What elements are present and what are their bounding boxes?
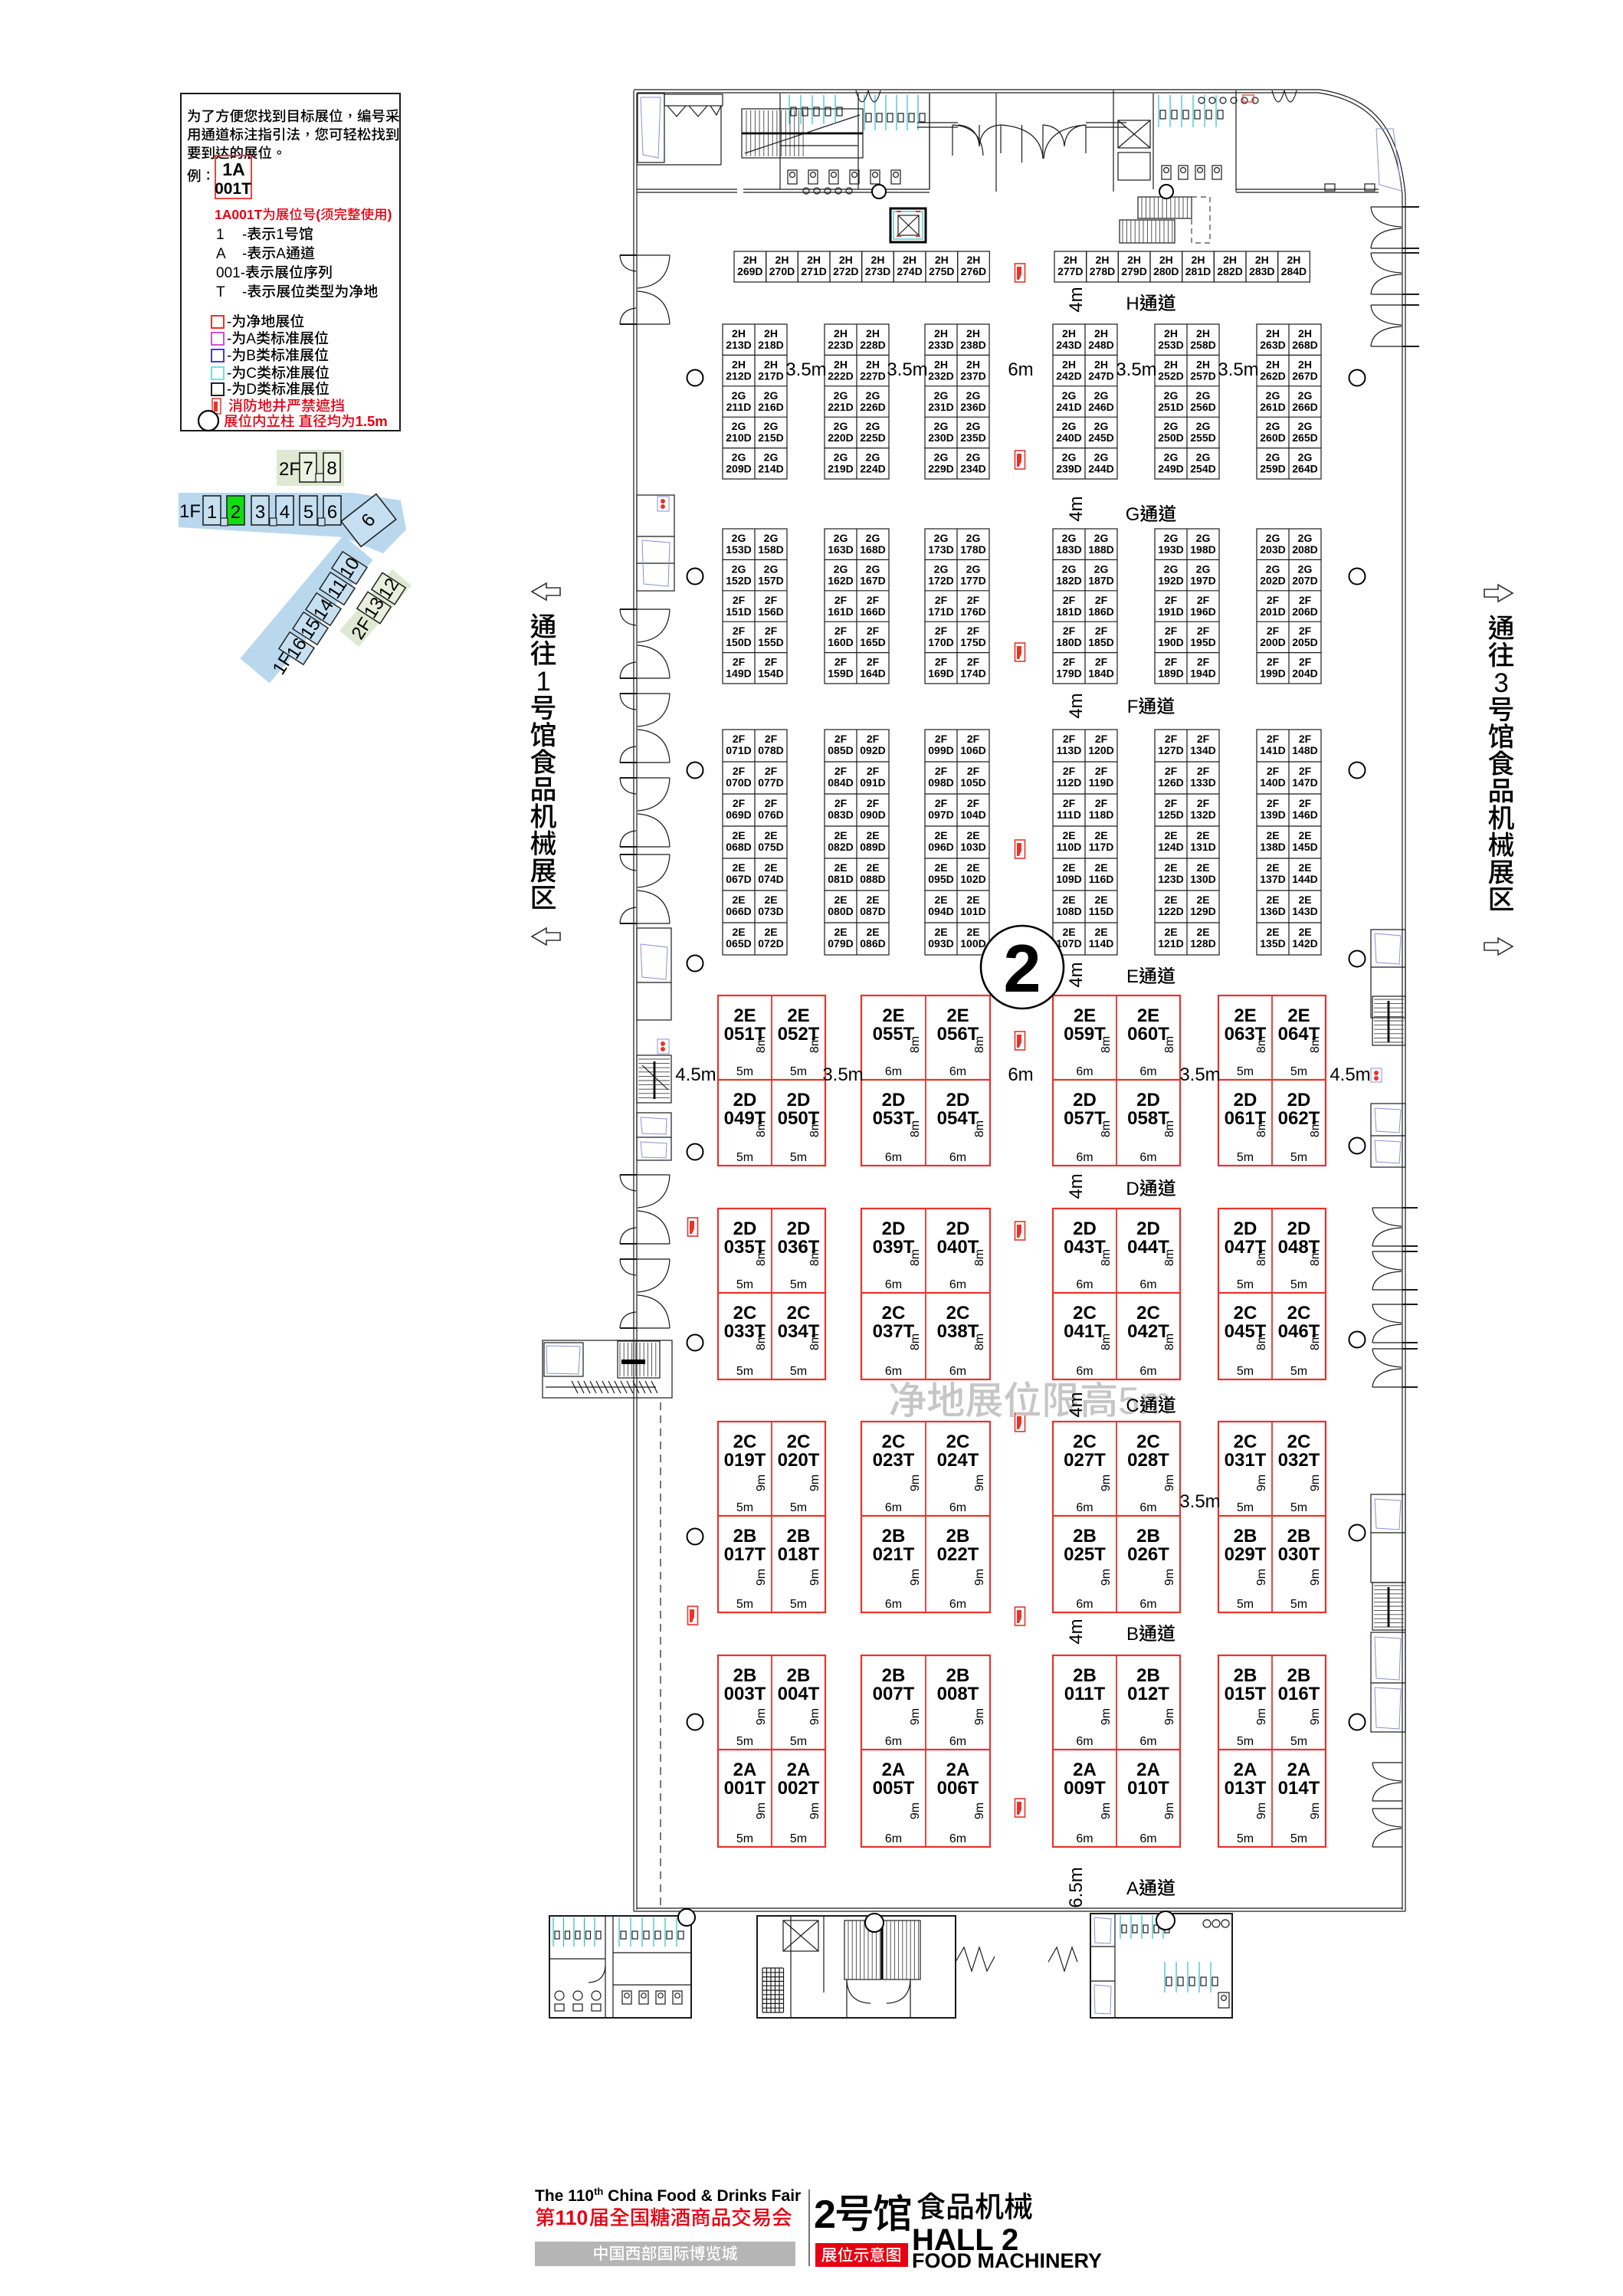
svg-text:(: ( (316, 207, 320, 222)
svg-text:5m: 5m (736, 1832, 753, 1845)
svg-text:-: - (227, 314, 231, 330)
svg-text:8m: 8m (755, 1120, 768, 1137)
svg-text:9m: 9m (1309, 1569, 1322, 1586)
svg-text:5m: 5m (1237, 1278, 1254, 1291)
svg-text:5m: 5m (790, 1598, 807, 1611)
svg-text:8m: 8m (973, 1333, 986, 1350)
svg-text:8m: 8m (755, 1249, 768, 1266)
svg-text:8m: 8m (755, 1333, 768, 1350)
svg-text:4.5m: 4.5m (1330, 1064, 1370, 1085)
svg-text:8m: 8m (808, 1120, 821, 1137)
svg-text:C: C (246, 366, 257, 382)
svg-text:B: B (246, 348, 256, 364)
svg-text:4m: 4m (1066, 1619, 1087, 1644)
svg-text:5m: 5m (736, 1501, 753, 1514)
svg-text:5m: 5m (1237, 1365, 1254, 1378)
svg-text:9m: 9m (1309, 1474, 1322, 1491)
svg-text:6m: 6m (949, 1832, 966, 1845)
svg-text:-: - (227, 331, 231, 347)
svg-text:8m: 8m (1309, 1333, 1322, 1350)
svg-text:6m: 6m (1076, 1278, 1093, 1291)
svg-text:4m: 4m (1066, 496, 1087, 521)
svg-text:2H: 2H (1064, 254, 1077, 266)
svg-text:6m: 6m (1076, 1598, 1093, 1611)
svg-text:8: 8 (326, 458, 336, 479)
svg-text:-: - (242, 227, 247, 243)
svg-text:1: 1 (276, 227, 284, 243)
svg-text:4m: 4m (1066, 1173, 1087, 1199)
svg-text:5m: 5m (1237, 1501, 1254, 1514)
svg-text:5m: 5m (1290, 1065, 1307, 1078)
svg-text:-: - (242, 284, 247, 300)
svg-text:1A: 1A (222, 159, 244, 179)
svg-text:5m: 5m (790, 1832, 807, 1845)
svg-text:274D: 274D (897, 265, 922, 277)
svg-text:3.5m: 3.5m (785, 359, 826, 380)
svg-text:2H: 2H (1287, 254, 1300, 266)
svg-text:6m: 6m (885, 1365, 902, 1378)
svg-text:9m: 9m (1163, 1708, 1176, 1725)
svg-text:9m: 9m (973, 1569, 986, 1586)
svg-text:2H: 2H (1159, 254, 1173, 266)
svg-text:282D: 282D (1217, 265, 1242, 277)
svg-text:6m: 6m (1139, 1151, 1156, 1164)
svg-text:D: D (246, 382, 257, 398)
svg-text:8m: 8m (1255, 1120, 1268, 1137)
svg-text:8m: 8m (808, 1036, 821, 1053)
svg-text:5m: 5m (1290, 1598, 1307, 1611)
svg-text:8m: 8m (1309, 1036, 1322, 1053)
svg-text:8m: 8m (1309, 1120, 1322, 1137)
svg-text:9m: 9m (909, 1569, 922, 1586)
svg-text:2H: 2H (1127, 254, 1141, 266)
svg-text:110: 110 (556, 2206, 589, 2229)
svg-text:277D: 277D (1057, 265, 1083, 277)
svg-text:2H: 2H (903, 254, 916, 266)
svg-text:9m: 9m (909, 1474, 922, 1491)
svg-text:8m: 8m (973, 1249, 986, 1266)
svg-text:9m: 9m (755, 1474, 768, 1491)
svg-text:B: B (1126, 1624, 1139, 1645)
svg-text:9m: 9m (1100, 1802, 1113, 1819)
svg-text:2: 2 (814, 2193, 834, 2237)
svg-text:8m: 8m (1100, 1249, 1113, 1266)
svg-text:271D: 271D (801, 265, 826, 277)
svg-text:1: 1 (216, 227, 225, 243)
svg-text:6m: 6m (1076, 1365, 1093, 1378)
svg-text:2H: 2H (1255, 254, 1269, 266)
svg-text:9m: 9m (1255, 1569, 1268, 1586)
svg-text:-: - (227, 366, 231, 382)
svg-text:5m: 5m (1290, 1278, 1307, 1291)
svg-text:6m: 6m (885, 1832, 902, 1845)
svg-text:1: 1 (536, 667, 550, 697)
svg-text:284D: 284D (1281, 265, 1307, 277)
svg-text:9m: 9m (755, 1708, 768, 1725)
svg-text:5m: 5m (790, 1501, 807, 1514)
svg-text:5m: 5m (790, 1278, 807, 1291)
svg-text:4m: 4m (1066, 287, 1087, 312)
svg-text:001T: 001T (215, 180, 251, 198)
svg-text:5m: 5m (1290, 1735, 1307, 1748)
svg-text:4m: 4m (1066, 693, 1087, 718)
svg-text:8m: 8m (909, 1249, 922, 1266)
svg-text:1: 1 (207, 502, 217, 523)
svg-text:4: 4 (280, 502, 290, 523)
svg-text:-: - (242, 246, 247, 262)
svg-text:C: C (1126, 1396, 1139, 1416)
svg-text:2: 2 (1004, 930, 1041, 1006)
svg-text:8m: 8m (973, 1120, 986, 1137)
svg-text:6m: 6m (885, 1151, 902, 1164)
svg-text:9m: 9m (808, 1708, 821, 1725)
svg-text:9m: 9m (755, 1569, 768, 1586)
svg-text:6m: 6m (949, 1065, 966, 1078)
svg-text:A: A (276, 246, 286, 262)
svg-text:8m: 8m (1163, 1036, 1176, 1053)
svg-text:5m: 5m (790, 1735, 807, 1748)
svg-text:9m: 9m (808, 1802, 821, 1819)
svg-text:9m: 9m (1100, 1474, 1113, 1491)
svg-text:1.5m: 1.5m (356, 413, 388, 429)
svg-text:5m: 5m (736, 1151, 753, 1164)
svg-text:6m: 6m (1076, 1151, 1093, 1164)
svg-text:): ) (388, 207, 392, 222)
svg-text:5m: 5m (1290, 1151, 1307, 1164)
svg-text:8m: 8m (1309, 1249, 1322, 1266)
svg-text:8m: 8m (808, 1249, 821, 1266)
svg-text:6m: 6m (885, 1735, 902, 1748)
svg-text:9m: 9m (973, 1708, 986, 1725)
svg-text:F: F (1127, 697, 1139, 717)
svg-text:278D: 278D (1090, 265, 1115, 277)
svg-text:276D: 276D (961, 265, 986, 277)
svg-text:8m: 8m (1163, 1249, 1176, 1266)
svg-text:5m: 5m (736, 1598, 753, 1611)
svg-text:5m: 5m (1237, 1598, 1254, 1611)
svg-text:5m: 5m (1290, 1832, 1307, 1845)
svg-text:3.5m: 3.5m (1179, 1064, 1220, 1085)
svg-text:A: A (216, 246, 226, 262)
svg-text:2F: 2F (279, 459, 300, 480)
svg-text:3.5m: 3.5m (1218, 359, 1258, 380)
svg-text:9m: 9m (973, 1474, 986, 1491)
svg-text:3: 3 (255, 502, 265, 523)
svg-text:T: T (216, 284, 225, 300)
svg-text:2H: 2H (807, 254, 821, 266)
svg-text:9m: 9m (755, 1802, 768, 1819)
svg-text:9m: 9m (1309, 1802, 1322, 1819)
svg-text:9m: 9m (909, 1802, 922, 1819)
svg-text:6m: 6m (885, 1501, 902, 1514)
svg-text:6m: 6m (949, 1365, 966, 1378)
svg-text:9m: 9m (1100, 1569, 1113, 1586)
svg-text:5m: 5m (1237, 1065, 1254, 1078)
svg-text:5m: 5m (736, 1278, 753, 1291)
svg-text:001-: 001- (216, 265, 245, 281)
svg-text:-: - (227, 348, 231, 364)
svg-text:6m: 6m (949, 1501, 966, 1514)
svg-text:H: H (1126, 294, 1139, 314)
svg-text:3.5m: 3.5m (1179, 1491, 1220, 1512)
svg-text:2H: 2H (775, 254, 789, 266)
svg-text:4.5m: 4.5m (675, 1064, 716, 1085)
svg-text:9m: 9m (909, 1708, 922, 1725)
svg-text:5m: 5m (790, 1065, 807, 1078)
svg-text:2H: 2H (1223, 254, 1237, 266)
svg-text:2H: 2H (1192, 254, 1205, 266)
svg-text:8m: 8m (1100, 1120, 1113, 1137)
svg-text:5m: 5m (790, 1365, 807, 1378)
svg-text:270D: 270D (769, 265, 795, 277)
svg-text:2H: 2H (871, 254, 885, 266)
svg-text:3.5m: 3.5m (1116, 359, 1156, 380)
svg-text:8m: 8m (1163, 1120, 1176, 1137)
svg-text:6m: 6m (1076, 1832, 1093, 1845)
svg-text:9m: 9m (1100, 1708, 1113, 1725)
svg-text:5m: 5m (1290, 1365, 1307, 1378)
svg-text:272D: 272D (833, 265, 858, 277)
svg-text:9m: 9m (1255, 1708, 1268, 1725)
svg-text:7: 7 (303, 458, 313, 479)
svg-text:9m: 9m (1163, 1802, 1176, 1819)
svg-text:8m: 8m (1255, 1036, 1268, 1053)
svg-text:6.5m: 6.5m (1066, 1867, 1087, 1907)
svg-text:2H: 2H (966, 254, 980, 266)
svg-text:9m: 9m (1255, 1802, 1268, 1819)
svg-text:5m: 5m (1237, 1832, 1254, 1845)
svg-text:G: G (1126, 504, 1140, 525)
svg-text:9m: 9m (1309, 1708, 1322, 1725)
svg-text:6m: 6m (1076, 1065, 1093, 1078)
svg-text:8m: 8m (1100, 1036, 1113, 1053)
svg-text:6m: 6m (1139, 1735, 1156, 1748)
svg-text:E: E (1126, 966, 1139, 987)
svg-text:9m: 9m (1163, 1474, 1176, 1491)
svg-text:269D: 269D (737, 265, 762, 277)
svg-text:5m: 5m (736, 1365, 753, 1378)
svg-text:6m: 6m (949, 1598, 966, 1611)
svg-text:9m: 9m (973, 1802, 986, 1819)
svg-text:5: 5 (303, 502, 313, 523)
svg-text:9m: 9m (808, 1569, 821, 1586)
svg-text:8m: 8m (1100, 1333, 1113, 1350)
svg-text:6m: 6m (1076, 1501, 1093, 1514)
svg-text:6m: 6m (1139, 1365, 1156, 1378)
svg-text:6m: 6m (1076, 1735, 1093, 1748)
svg-text:6m: 6m (885, 1278, 902, 1291)
svg-text:6m: 6m (1139, 1832, 1156, 1845)
svg-text:283D: 283D (1249, 265, 1274, 277)
svg-text:6m: 6m (1008, 359, 1033, 380)
svg-text:D: D (1126, 1179, 1139, 1199)
svg-text:6m: 6m (1139, 1501, 1156, 1514)
svg-text:5m: 5m (1237, 1151, 1254, 1164)
svg-text:1F: 1F (179, 501, 201, 522)
svg-text:8m: 8m (909, 1036, 922, 1053)
svg-text:-: - (227, 382, 231, 398)
svg-text:2H: 2H (935, 254, 949, 266)
svg-text:2H: 2H (839, 254, 853, 266)
svg-text:9m: 9m (1255, 1474, 1268, 1491)
svg-text:5m: 5m (736, 1735, 753, 1748)
svg-text:1A001T: 1A001T (215, 207, 263, 222)
svg-text:6m: 6m (1139, 1598, 1156, 1611)
svg-text:4m: 4m (1066, 1392, 1087, 1417)
svg-text:8m: 8m (973, 1036, 986, 1053)
svg-text:FOOD MACHINERY: FOOD MACHINERY (912, 2249, 1102, 2272)
svg-text:5m: 5m (736, 1065, 753, 1078)
svg-text:281D: 281D (1185, 265, 1211, 277)
svg-text:9m: 9m (1163, 1569, 1176, 1586)
svg-text:6m: 6m (949, 1278, 966, 1291)
svg-text:275D: 275D (929, 265, 954, 277)
svg-text:280D: 280D (1153, 265, 1179, 277)
svg-text:8m: 8m (1255, 1333, 1268, 1350)
svg-text:4m: 4m (1066, 962, 1087, 987)
svg-text:8m: 8m (808, 1333, 821, 1350)
svg-text:8m: 8m (755, 1036, 768, 1053)
svg-text:6: 6 (327, 502, 337, 523)
svg-text:6m: 6m (885, 1598, 902, 1611)
svg-text:8m: 8m (1163, 1333, 1176, 1350)
svg-text:3.5m: 3.5m (822, 1064, 863, 1085)
svg-text:8m: 8m (1255, 1249, 1268, 1266)
svg-text:5m: 5m (1237, 1735, 1254, 1748)
svg-text:6m: 6m (885, 1065, 902, 1078)
svg-text:2: 2 (231, 502, 241, 523)
svg-text:8m: 8m (909, 1120, 922, 1137)
svg-text:5m: 5m (790, 1151, 807, 1164)
svg-text:2H: 2H (743, 254, 757, 266)
svg-text:A: A (246, 331, 256, 347)
svg-text:3: 3 (1493, 668, 1508, 698)
svg-text:6m: 6m (949, 1151, 966, 1164)
svg-text:6m: 6m (949, 1735, 966, 1748)
svg-text:3.5m: 3.5m (887, 359, 927, 380)
svg-text:The 110th China Food & Drinks: The 110th China Food & Drinks Fair (535, 2186, 801, 2205)
svg-text:279D: 279D (1121, 265, 1146, 277)
svg-text:6m: 6m (1008, 1064, 1033, 1085)
svg-text:9m: 9m (808, 1474, 821, 1491)
svg-text:273D: 273D (865, 265, 890, 277)
svg-text:6m: 6m (1139, 1065, 1156, 1078)
svg-text:A: A (1126, 1878, 1139, 1899)
svg-text:5m: 5m (1290, 1501, 1307, 1514)
svg-text:2H: 2H (1096, 254, 1110, 266)
svg-text:6m: 6m (1139, 1278, 1156, 1291)
svg-text:8m: 8m (909, 1333, 922, 1350)
